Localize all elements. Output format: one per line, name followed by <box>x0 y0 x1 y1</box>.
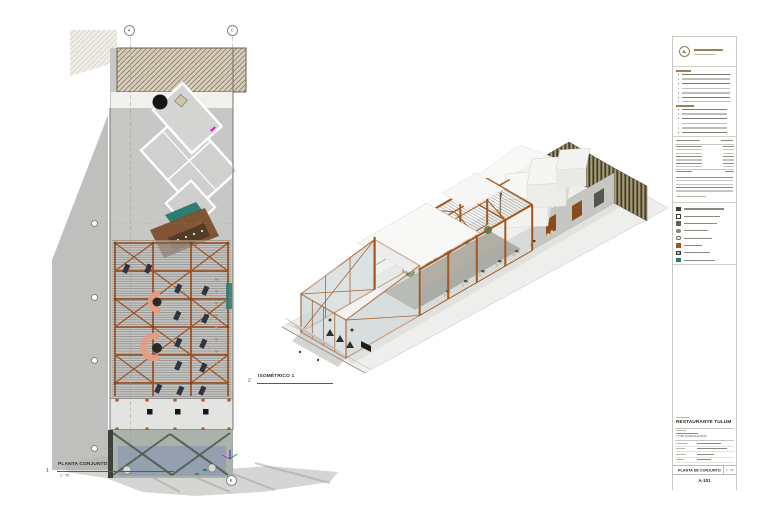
grid-bubble-b: B <box>226 475 237 486</box>
title-block-project-box: RESTAURANTE TULUM 77760 QUINTANA ROO PLA… <box>673 414 736 491</box>
sheet-name-row: PLANTA DE CONJUNTO 1 : 75 <box>673 465 736 475</box>
iso-view-title: ISOMÉTRICO 1 <box>258 374 294 379</box>
scale-cell: 1 : 75 <box>723 466 736 474</box>
title-block-logo-box <box>673 37 736 67</box>
project-title: RESTAURANTE TULUM <box>676 420 731 425</box>
sheet-number-row: A-101 <box>673 475 736 490</box>
legend-symbol-2 <box>676 214 681 219</box>
firm-wordmark <box>694 49 723 51</box>
notes-heading <box>676 70 691 72</box>
plan-view-number: 1 <box>46 468 49 473</box>
project-address-line2: 77760 QUINTANA ROO <box>676 435 707 438</box>
sheet-drawing-canvas <box>0 0 768 512</box>
grid-bubble-row-1 <box>91 220 98 227</box>
plan-tree-circle <box>153 95 168 110</box>
sheet-name: PLANTA DE CONJUNTO <box>678 469 721 473</box>
firm-logo-icon <box>679 46 690 57</box>
grid-label-a: A <box>128 29 130 33</box>
data-labels-column <box>676 146 702 168</box>
plan-view-scale: 1 : 75 <box>60 474 69 478</box>
legend-symbol-7 <box>676 251 681 256</box>
grid-bubble-row-2 <box>91 294 98 301</box>
plan-view-underline <box>57 471 174 472</box>
grid-bubble-row-4 <box>91 445 98 452</box>
plan-shadow-left <box>52 115 108 470</box>
plan-louver-roof <box>112 240 231 398</box>
grid-bubble-a: A <box>124 25 135 36</box>
legend-symbol-4 <box>676 229 681 234</box>
notes-lines-group1 <box>682 74 730 102</box>
iso-view-drawing <box>282 142 668 373</box>
field-row <box>675 457 734 463</box>
legend-symbol-3 <box>676 221 681 226</box>
legend-symbol-8 <box>676 258 681 263</box>
data-values-column <box>723 146 734 168</box>
grid-bubble-c: C <box>227 25 238 36</box>
scale-value: 1 : 75 <box>726 469 733 472</box>
grid-label-c: C <box>231 29 234 33</box>
title-block-notes-box <box>673 67 736 137</box>
project-address-line1 <box>676 433 698 434</box>
title-block: RESTAURANTE TULUM 77760 QUINTANA ROO PLA… <box>672 36 737 490</box>
notes-lines-group2 <box>682 109 727 135</box>
sheet-number: A-101 <box>681 479 728 484</box>
iso-view-number: 2 <box>248 378 251 383</box>
grid-bubble-row-3 <box>91 357 98 364</box>
title-block-legend-box <box>673 203 736 265</box>
plan-plaza <box>110 398 233 430</box>
legend-symbol-6 <box>676 243 681 248</box>
data-paragraph <box>676 177 733 193</box>
plan-view-title: PLANTA CONJUNTO <box>58 462 108 467</box>
drawing-sheet: { "sheet": { "background": "#ffffff", "t… <box>0 0 768 512</box>
legend-symbol-5 <box>676 236 681 241</box>
notes-heading-2 <box>676 105 694 107</box>
iso-view-underline <box>257 383 333 384</box>
grid-label-b: B <box>230 479 232 483</box>
title-block-data-box <box>673 137 736 203</box>
legend-symbol-1 <box>676 207 681 212</box>
plan-view-drawing <box>52 30 338 496</box>
